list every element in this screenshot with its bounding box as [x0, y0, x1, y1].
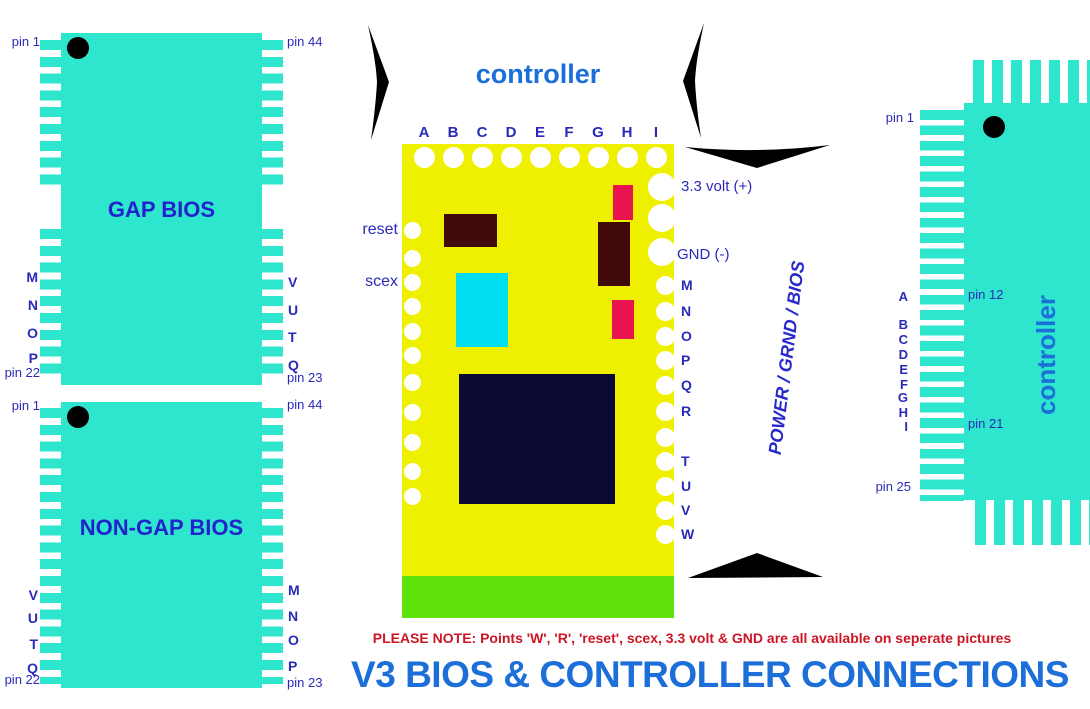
gap-bios-pin22-label: pin 22 [0, 366, 40, 380]
solder-point [404, 274, 421, 291]
gap-bios-left-pins-top [40, 40, 61, 187]
solder-point [648, 173, 676, 201]
arrow-wide-down [685, 145, 830, 168]
board-point-c: C [468, 125, 496, 142]
gap-bios-right-pins-bottom [262, 229, 283, 377]
connector-bottom-pins [975, 500, 1090, 545]
connector-left-pins [920, 110, 964, 501]
solder-point [656, 402, 675, 421]
solder-point [404, 323, 421, 340]
solder-point [443, 147, 464, 168]
solder-point [656, 376, 675, 395]
board-point-g: G [584, 125, 612, 142]
board-point-r: R [681, 404, 691, 419]
solder-point [404, 404, 421, 421]
solder-point [656, 452, 675, 471]
connector-point-g: G [878, 391, 908, 405]
gap-bios-left-pins-bottom [40, 229, 61, 377]
solder-point [404, 250, 421, 267]
board-ic-chip-navy [459, 374, 615, 504]
board-point-o: O [681, 329, 692, 344]
board-33volt-label: 3.3 volt (+) [681, 179, 752, 196]
board-reset-label: reset [340, 221, 398, 239]
solder-point [414, 147, 435, 168]
gap-bios-point-n: N [10, 298, 38, 313]
nongap-bios-left-pins [40, 408, 61, 684]
gap-bios-pin1-indicator-dot [67, 37, 89, 59]
gap-bios-point-p: P [10, 351, 38, 366]
solder-point [559, 147, 580, 168]
nongap-bios-pin44-label: pin 44 [287, 398, 322, 412]
board-point-a: A [410, 125, 438, 142]
solder-point [588, 147, 609, 168]
solder-point [656, 477, 675, 496]
solder-point [530, 147, 551, 168]
board-point-h: H [613, 125, 641, 142]
nongap-bios-point-q: Q [10, 661, 38, 676]
solder-point [656, 525, 675, 544]
solder-point [404, 222, 421, 239]
gap-bios-right-pins-top [262, 40, 283, 187]
connector-pin25-label: pin 25 [867, 480, 911, 494]
board-point-d: D [497, 125, 525, 142]
solder-point [404, 347, 421, 364]
solder-point [501, 147, 522, 168]
solder-point [656, 501, 675, 520]
board-gnd-label: GND (-) [677, 247, 730, 264]
nongap-bios-pin1-label: pin 1 [2, 399, 40, 413]
board-point-v: V [681, 503, 690, 518]
solder-point [404, 488, 421, 505]
nongap-bios-pin1-indicator-dot [67, 406, 89, 428]
board-point-n: N [681, 304, 691, 319]
gap-bios-point-t: T [288, 330, 297, 345]
connector-point-a: A [878, 290, 908, 304]
gap-bios-title: GAP BIOS [61, 198, 262, 222]
solder-point [656, 276, 675, 295]
nongap-bios-right-pins [262, 408, 283, 684]
solder-point [404, 298, 421, 315]
connector-point-c: C [878, 333, 908, 347]
solder-point [656, 351, 675, 370]
board-point-m: M [681, 278, 693, 293]
connector-point-e: E [878, 363, 908, 377]
board-component-maroon-2 [598, 222, 630, 286]
board-controller-heading: controller [402, 60, 674, 90]
nongap-bios-point-m: M [288, 583, 300, 598]
solder-point [617, 147, 638, 168]
nongap-bios-point-n: N [288, 609, 298, 624]
arrow-wide-up [688, 553, 823, 578]
board-point-q: Q [681, 378, 692, 393]
please-note-text: PLEASE NOTE: Points 'W', 'R', 'reset', s… [332, 631, 1052, 646]
gap-bios-pin1-label: pin 1 [2, 35, 40, 49]
solder-point [656, 327, 675, 346]
connector-pin21-label: pin 21 [968, 417, 1003, 431]
connector-pin12-label: pin 12 [968, 288, 1003, 302]
board-point-b: B [439, 125, 467, 142]
arrow-left-swoosh [368, 25, 389, 140]
board-point-t: T [681, 454, 690, 469]
board-component-maroon-1 [444, 214, 497, 247]
gap-bios-point-v: V [288, 275, 297, 290]
connector-point-b: B [878, 318, 908, 332]
nongap-bios-title: NON-GAP BIOS [61, 516, 262, 540]
board-point-w: W [681, 527, 694, 542]
nongap-bios-pin23-label: pin 23 [287, 676, 322, 690]
diagram-canvas: GAP BIOS pin 1 pin 44 pin 22 pin 23 M N … [0, 0, 1090, 709]
board-point-i: I [642, 125, 670, 142]
nongap-bios-chip-body [61, 402, 262, 688]
board-point-f: F [555, 125, 583, 142]
connector-pin1-indicator-dot [983, 116, 1005, 138]
board-component-crimson-2 [612, 300, 634, 339]
solder-point [404, 374, 421, 391]
arrow-right-swoosh [683, 23, 704, 138]
solder-point [404, 463, 421, 480]
solder-point [648, 204, 676, 232]
power-grnd-bios-label: POWER / GRND / BIOS [765, 255, 810, 461]
solder-point [656, 302, 675, 321]
board-point-u: U [681, 479, 691, 494]
solder-point [472, 147, 493, 168]
gap-bios-point-q: Q [288, 358, 299, 373]
modchip-board [402, 144, 674, 576]
connector-pin1-label: pin 1 [870, 111, 914, 125]
gap-bios-point-o: O [10, 326, 38, 341]
board-point-e: E [526, 125, 554, 142]
board-component-aqua [456, 273, 508, 347]
board-point-p: P [681, 353, 690, 368]
connector-point-i: I [878, 420, 908, 434]
board-scex-label: scex [348, 273, 398, 291]
nongap-bios-point-v: V [10, 588, 38, 603]
connector-top-pins [973, 60, 1090, 104]
nongap-bios-point-u: U [10, 611, 38, 626]
board-component-crimson-1 [613, 185, 633, 220]
solder-point [646, 147, 667, 168]
solder-point [404, 434, 421, 451]
solder-point [656, 428, 675, 447]
connector-title: controller [1032, 275, 1052, 435]
solder-point [648, 238, 676, 266]
connector-point-d: D [878, 348, 908, 362]
board-edge-connector-green [402, 576, 674, 618]
nongap-bios-point-o: O [288, 633, 299, 648]
page-title: V3 BIOS & CONTROLLER CONNECTIONS [330, 655, 1090, 696]
nongap-bios-point-p: P [288, 659, 297, 674]
gap-bios-pin44-label: pin 44 [287, 35, 322, 49]
gap-bios-point-m: M [10, 270, 38, 285]
nongap-bios-point-t: T [10, 637, 38, 652]
gap-bios-point-u: U [288, 303, 298, 318]
